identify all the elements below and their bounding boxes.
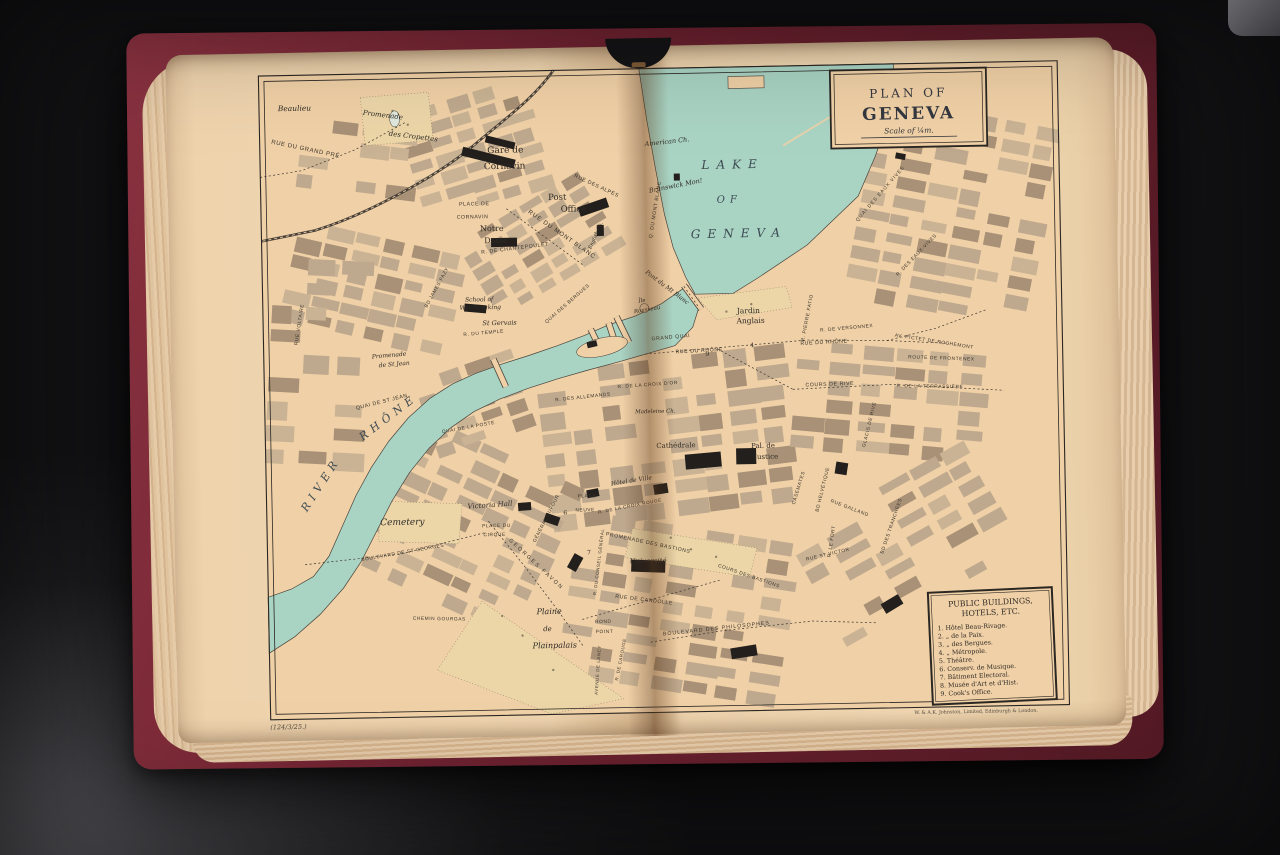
city-block (864, 345, 895, 362)
map-label-office: Office (561, 204, 587, 214)
map-legend: PUBLIC BUILDINGS, HOTELS, ETC. 1. Hôtel … (928, 587, 1057, 705)
city-block (574, 429, 594, 445)
map-label-cirque: CIRQUE (483, 532, 505, 538)
map-label-madeleine: Madeleine Ch. (634, 409, 676, 416)
city-block (957, 411, 980, 427)
geneva-map: BeaulieuRUE DU GRAND PRÉPromenadedes Cro… (242, 50, 1090, 738)
map-title-cartouche: PLAN OF GENEVA Scale of ¼m. (830, 68, 987, 149)
city-block (628, 360, 649, 376)
city-block (961, 373, 983, 386)
city-block (959, 392, 989, 408)
city-block (298, 451, 326, 465)
map-plate-number: (124/3/25.) (270, 723, 307, 732)
map-label-cemetery: Cemetery (380, 517, 426, 528)
city-block (355, 181, 375, 194)
map-label-gare_de: Gare de (487, 145, 523, 156)
city-block (308, 259, 336, 277)
map-label-place_cornavin: CORNAVIN (457, 214, 489, 221)
lake-pier (728, 76, 764, 89)
city-block (769, 466, 794, 483)
city-block (306, 307, 327, 321)
city-block (725, 369, 747, 389)
city-block (823, 437, 844, 453)
city-block (646, 503, 665, 521)
public-building (674, 173, 680, 180)
city-block (545, 453, 566, 468)
cartouche-title: GENEVA (862, 103, 955, 125)
map-label-universite: Université (630, 557, 667, 566)
city-block (771, 487, 794, 505)
map-label-cornavin: Cornavin (484, 161, 526, 172)
public-building (518, 502, 532, 511)
city-block (633, 576, 652, 593)
city-block (337, 357, 360, 376)
map-label-place_du: PLACE DU (482, 523, 511, 530)
city-block (824, 418, 850, 436)
cartouche-scale: Scale of ¼m. (884, 126, 934, 136)
map-label-post: Post (548, 193, 567, 203)
city-block (926, 389, 959, 406)
map-label-anglais: Anglais (735, 316, 764, 326)
city-block (307, 283, 330, 296)
map-label-de: de (543, 625, 552, 633)
map-imprint: W. & A.K. Johnston, Limited, Edinburgh &… (914, 708, 1038, 716)
public-building (685, 451, 722, 469)
map-label-justice: Justice (753, 453, 778, 461)
city-block (699, 413, 724, 432)
map-label-watchmaking: Watchmaking (460, 304, 502, 312)
map-label-place: PLACE (578, 493, 597, 499)
city-block (890, 424, 915, 439)
city-block (602, 405, 621, 422)
city-block (266, 401, 287, 421)
open-atlas-book: BeaulieuRUE DU GRAND PRÉPromenadedes Cro… (131, 14, 1177, 776)
city-block (797, 359, 820, 371)
city-block (342, 261, 375, 276)
map-label-gourgas: CHEMIN GOURGAS (413, 616, 466, 623)
city-block (303, 355, 330, 375)
city-block (923, 427, 942, 442)
map-label-plaine: Plaine (535, 607, 562, 617)
public-building (835, 462, 849, 476)
background-object (1228, 0, 1280, 36)
map-label-of: OF (717, 194, 742, 205)
city-block (706, 474, 729, 492)
map-label-cathedrale: Cathédrale (656, 441, 696, 450)
map-label-jardin: Jardin (736, 306, 760, 315)
map-label-point: POINT (596, 629, 614, 635)
city-block (791, 416, 825, 433)
map-label-school_of: School of (465, 296, 495, 304)
binding-stitch (632, 62, 646, 67)
city-block (895, 367, 925, 381)
map-label-n7: 7 (587, 549, 591, 556)
city-block (540, 412, 567, 432)
city-block (759, 384, 785, 402)
city-block (722, 348, 747, 368)
city-block (579, 470, 600, 490)
map-label-rond: ROND (595, 619, 612, 625)
map-label-n6: 6 (563, 510, 567, 517)
map-label-pal_de: Pal. de (751, 442, 775, 450)
map-label-n9: 9 (705, 351, 709, 358)
city-block (826, 399, 853, 414)
city-block (696, 393, 716, 406)
map-label-st_gervais: St Gervais (482, 319, 517, 328)
map-label-n4: 4 (750, 342, 754, 349)
map-label-beaulieu: Beaulieu (277, 104, 312, 114)
city-block (271, 305, 291, 324)
map-label-neuve: NEUVE (575, 507, 595, 513)
map-label-place_de: PLACE DE (459, 201, 490, 208)
map-label-geneva: GENEVA (691, 225, 787, 241)
city-block (889, 443, 910, 456)
city-block (296, 174, 313, 189)
cartouche-line1: PLAN OF (869, 85, 947, 100)
city-block (268, 377, 299, 393)
photo-scene: BeaulieuRUE DU GRAND PRÉPromenadedes Cro… (0, 0, 1280, 855)
map-label-plainpalais: Plainpalais (532, 641, 577, 651)
map-label-dame: Dame (484, 236, 508, 245)
city-block (576, 449, 597, 466)
city-block (265, 425, 294, 442)
map-label-notre: Notre (480, 224, 504, 233)
city-block (829, 362, 860, 377)
city-block (547, 474, 565, 488)
city-block (790, 434, 814, 448)
city-block (390, 147, 410, 161)
city-block (928, 370, 948, 384)
map-label-lake: LAKE (700, 157, 764, 172)
city-block (264, 449, 284, 464)
